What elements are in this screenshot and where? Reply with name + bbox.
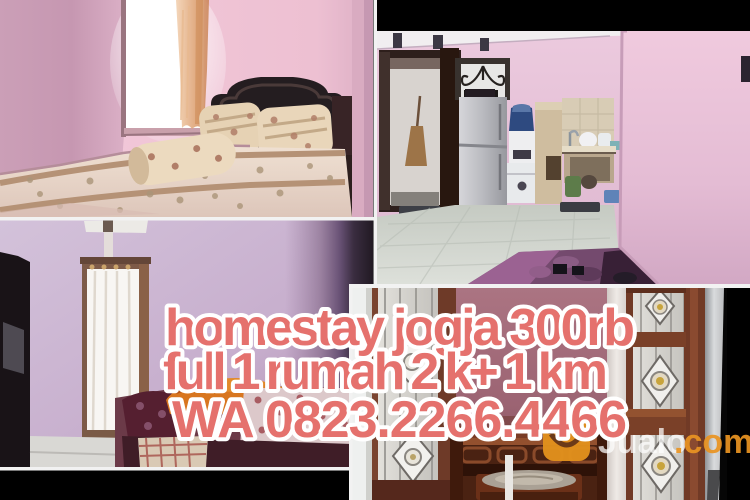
svg-text:WA 0823.2266.4466: WA 0823.2266.4466 xyxy=(172,391,627,449)
svg-text:.com: .com xyxy=(674,423,750,461)
